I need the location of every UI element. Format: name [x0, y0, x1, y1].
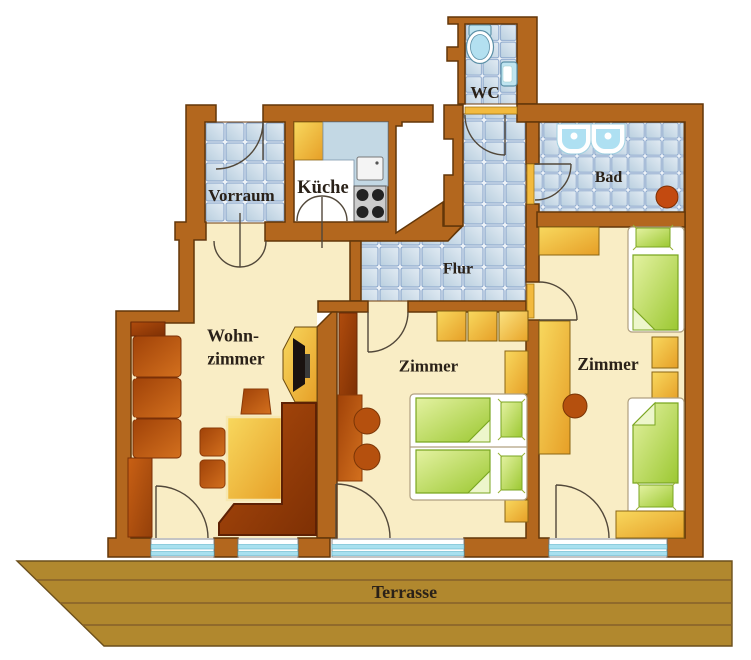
- svg-text:Küche: Küche: [297, 178, 348, 198]
- svg-text:zimmer: zimmer: [207, 349, 265, 369]
- svg-text:WC: WC: [470, 83, 499, 102]
- svg-text:Terrasse: Terrasse: [372, 582, 437, 602]
- svg-text:Wohn-: Wohn-: [207, 326, 259, 346]
- svg-text:Zimmer: Zimmer: [399, 357, 459, 376]
- svg-text:Zimmer: Zimmer: [577, 354, 638, 374]
- svg-text:Flur: Flur: [443, 261, 473, 278]
- svg-text:Bad: Bad: [595, 169, 623, 186]
- svg-text:Vorraum: Vorraum: [208, 186, 274, 205]
